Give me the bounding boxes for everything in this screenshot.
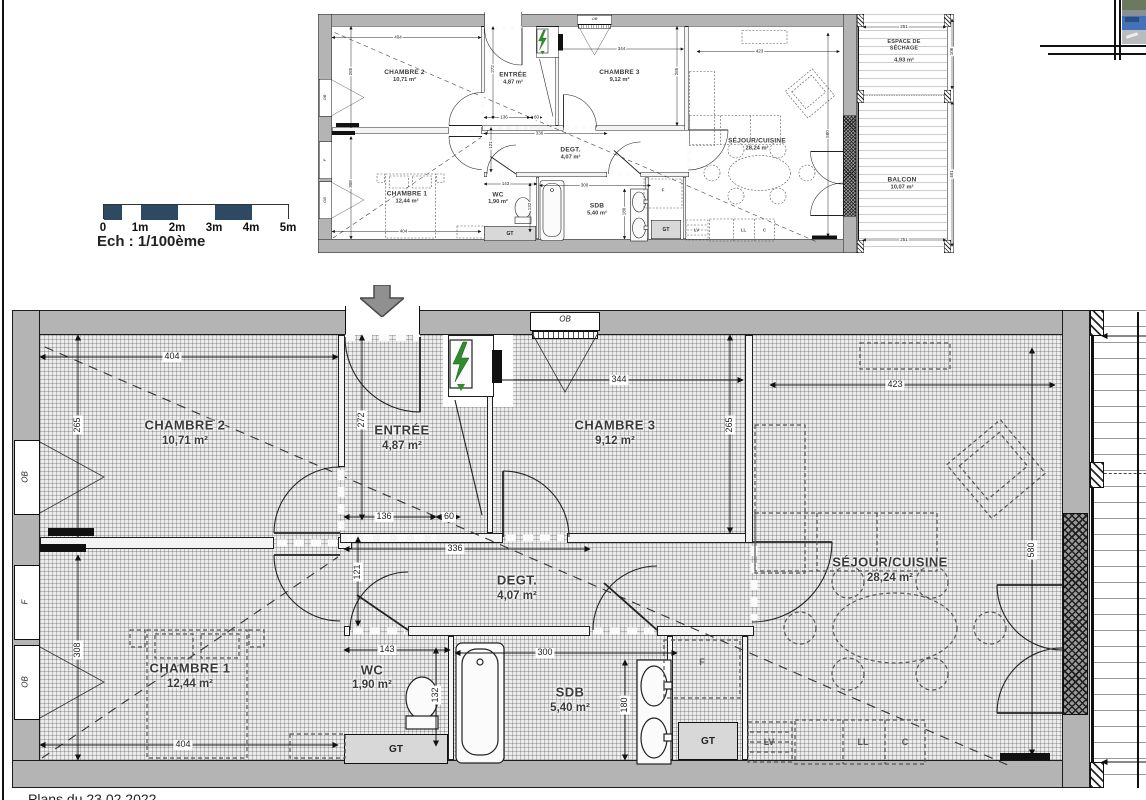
room-label-degt: DEGT.: [497, 573, 537, 588]
corner-photo-thumbnail: [1122, 0, 1146, 44]
room-label-chambre2: CHAMBRE 2: [145, 418, 226, 433]
dim-balcon-height: 401: [950, 169, 955, 179]
scale-bar: [103, 204, 289, 219]
room-label-sechage: ESPACE DE SÉCHAGE: [1140, 359, 1146, 384]
photo-car-window: [1125, 17, 1139, 22]
photo-crop-hline-1: [1040, 45, 1146, 47]
dim-hall-60: 60: [442, 512, 456, 522]
dim-chambre1-width: 404: [173, 740, 192, 750]
dim-entree-height: 272: [357, 410, 367, 429]
dim-degt-width: 336: [535, 131, 545, 136]
window-swings: [40, 333, 598, 718]
dim-sechage-width: 251: [899, 25, 909, 30]
room-area-sdb: 5,40 m²: [587, 210, 607, 216]
room-area-wc: 1,90 m²: [352, 679, 392, 691]
detail-plan: OB OB F OB GT: [12, 310, 1146, 788]
room-label-sejour: SÉJOUR/CUISINE: [728, 136, 786, 144]
room-area-chambre3: 9,12 m²: [595, 435, 635, 447]
tag-ll: LL: [858, 737, 869, 747]
dim-wc-width: 143: [377, 645, 396, 655]
photo-foliage: [1122, 0, 1146, 10]
room-label-entree: ENTRÉE: [374, 423, 429, 438]
fixtures: [332, 29, 837, 241]
dim-sejour-height: 580: [826, 129, 831, 139]
room-area-balcon: 10,07 m²: [890, 184, 913, 190]
room-label-degt: DEGT.: [560, 145, 580, 153]
dim-chambre3-width: 344: [617, 47, 627, 52]
room-area-chambre2: 10,71 m²: [393, 77, 416, 83]
dim-sdb-width: 300: [580, 183, 590, 188]
dim-hall-136: 136: [499, 115, 509, 120]
room-area-sejour: 28,24 m²: [745, 145, 768, 151]
room-label-balcon: BALCON: [887, 175, 916, 183]
tag-lv: LV: [764, 737, 775, 747]
room-area-chambre3: 9,12 m²: [610, 77, 630, 83]
room-area-sechage: 4,93 m²: [894, 57, 914, 63]
furniture: [130, 343, 1045, 764]
room-area-entree: 4,87 m²: [503, 79, 523, 85]
photo-crop-vline-2: [1119, 0, 1121, 60]
scale-seg: [122, 205, 141, 220]
plan-date-caption: Plans du 23.02.2022: [28, 791, 156, 800]
plan-linework: [318, 14, 963, 253]
scale-seg: [252, 205, 288, 220]
room-label-sechage: ESPACE DE SÉCHAGE: [882, 39, 926, 52]
room-label-wc: WC: [492, 190, 503, 198]
dim-sejour-width: 423: [755, 49, 765, 54]
room-area-degt: 4,07 m²: [561, 154, 581, 160]
dimension-lines: [40, 320, 1146, 775]
dim-chambre3-height: 265: [675, 67, 680, 77]
overview-plan: OB OB F OB GT: [318, 14, 963, 253]
dim-sejour-width: 423: [885, 380, 904, 390]
photo-crop-vline-1: [1114, 0, 1116, 60]
page-left-rule: [2, 0, 4, 800]
scale-label: Ech : 1/100ème: [97, 233, 205, 250]
plan-linework: [12, 310, 1146, 788]
dim-sdb-height: 180: [620, 695, 630, 714]
dim-chambre2-height: 265: [349, 67, 354, 77]
room-label-chambre3: CHAMBRE 3: [575, 418, 656, 433]
room-area-entree: 4,87 m²: [382, 440, 422, 452]
dim-chambre2-height: 265: [73, 415, 83, 434]
dim-chambre1-height: 308: [73, 640, 83, 659]
dim-sdb-width: 300: [535, 648, 554, 658]
tag-ll: LL: [741, 228, 747, 233]
room-label-chambre1: CHAMBRE 1: [150, 661, 231, 676]
tag-f-unit: F: [699, 657, 705, 667]
room-label-chambre2: CHAMBRE 2: [384, 68, 424, 76]
room-label-chambre3: CHAMBRE 3: [599, 68, 639, 76]
room-label-entree: ENTRÉE: [499, 70, 527, 78]
dim-chambre3-width: 344: [609, 375, 628, 385]
scale-seg: [141, 205, 178, 220]
tag-f-unit: F: [662, 188, 665, 193]
dim-degt-height: 121: [489, 140, 494, 150]
room-label-sdb: SDB: [556, 685, 585, 700]
dim-sdb-height: 180: [622, 207, 627, 217]
dim-chambre2-width: 404: [162, 352, 181, 362]
dim-hall-60: 60: [533, 115, 540, 120]
dim-chambre3-height: 265: [725, 415, 735, 434]
scale-tick-5: 5m: [280, 222, 297, 234]
room-label-wc: WC: [361, 663, 383, 678]
room-area-sejour: 28,24 m²: [867, 572, 913, 584]
room-area-sdb: 5,40 m²: [550, 702, 590, 714]
door-arcs: [274, 337, 1062, 713]
window-swings: [332, 26, 611, 219]
dim-wc-width: 143: [501, 182, 511, 187]
scale-seg: [178, 205, 215, 220]
fixtures: [40, 340, 1050, 764]
photo-crop-hline-2: [1048, 53, 1146, 55]
room-label-sdb: SDB: [590, 201, 604, 209]
dim-sejour-height: 580: [1027, 540, 1037, 559]
dim-wc-height: 132: [431, 685, 441, 704]
door-arcs: [449, 28, 843, 216]
room-area-chambre1: 12,44 m²: [395, 198, 418, 204]
scale-tick-3: 3m: [206, 222, 223, 234]
room-area-degt: 4,07 m²: [497, 590, 537, 602]
room-label-chambre1: CHAMBRE 1: [387, 189, 427, 197]
scale-tick-4: 4m: [243, 222, 260, 234]
tag-c: C: [763, 228, 766, 233]
scale-seg: [104, 205, 122, 220]
dim-chambre2-width: 404: [393, 35, 403, 40]
tag-lv: LV: [694, 228, 699, 233]
tag-c: C: [902, 737, 909, 747]
stage: OB OB F OB GT: [0, 0, 1146, 800]
dim-hall-136: 136: [374, 512, 393, 522]
room-area-chambre2: 10,71 m²: [162, 435, 208, 447]
dim-degt-height: 121: [353, 562, 363, 581]
dim-entree-height: 272: [491, 64, 496, 74]
plan-clip-edge: [1137, 312, 1139, 788]
dim-sechage-height: 106: [950, 47, 955, 57]
room-label-sejour: SÉJOUR/CUISINE: [832, 555, 947, 570]
dim-chambre1-height: 308: [349, 179, 354, 189]
dim-balcon-width: 251: [899, 238, 909, 243]
dim-wc-height: 132: [528, 202, 533, 212]
zoom-arrow-icon: [360, 285, 404, 317]
scale-seg: [215, 205, 252, 220]
dim-chambre1-width: 404: [399, 229, 409, 234]
room-area-chambre1: 12,44 m²: [167, 678, 213, 690]
room-area-wc: 1,90 m²: [488, 199, 508, 205]
dim-degt-width: 336: [445, 544, 464, 554]
